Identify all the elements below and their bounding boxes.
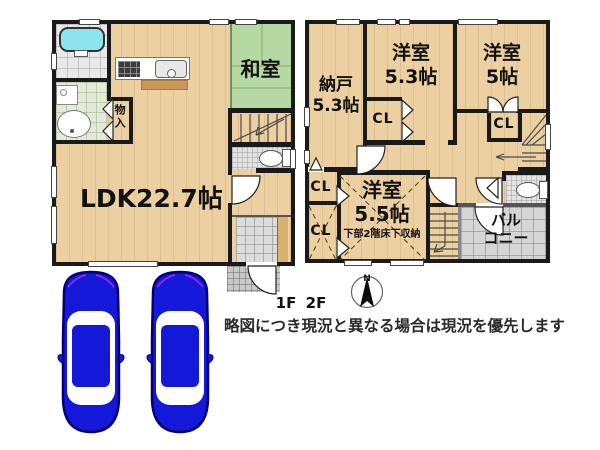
wall xyxy=(367,97,402,101)
closet-label: CL xyxy=(306,224,336,239)
toilet2-tank xyxy=(539,181,548,199)
room-label-washitsu: 和室 xyxy=(230,58,291,80)
window-mark xyxy=(458,19,498,25)
room-label-west-a-size: 5.3帖 xyxy=(372,67,450,88)
door-gap xyxy=(308,167,324,172)
bathtub xyxy=(59,27,105,52)
genkan-floor xyxy=(236,217,277,262)
wall xyxy=(129,101,133,144)
room-label-west-b-name: 洋室 xyxy=(462,43,542,64)
wall xyxy=(487,138,522,142)
window-mark xyxy=(377,19,396,25)
room-label-west-c-name: 洋室 xyxy=(344,179,420,201)
laundry-basin xyxy=(57,110,91,138)
window-mark xyxy=(304,150,310,164)
closet-label: CL xyxy=(489,117,519,132)
wall xyxy=(453,20,457,145)
entrance-door-gap xyxy=(246,262,277,268)
wall xyxy=(430,203,458,207)
bath-faucet xyxy=(74,50,88,57)
room-label-west-c-size: 5.5帖 xyxy=(344,203,420,225)
floor2-label: 2F xyxy=(302,295,330,312)
floor1-label: 1F xyxy=(272,295,300,312)
basin-drain xyxy=(70,129,74,133)
balcony-door-gap xyxy=(476,203,503,207)
balcony-edge xyxy=(458,207,461,259)
room-label-storage: 物入 xyxy=(113,104,125,130)
stove-icon xyxy=(118,61,140,77)
washstand xyxy=(56,85,78,105)
window-mark xyxy=(51,166,57,198)
genkan-step-line xyxy=(232,215,291,217)
wall xyxy=(367,140,425,145)
window-mark xyxy=(390,260,424,266)
wall xyxy=(52,78,111,82)
wall xyxy=(107,20,111,100)
wall xyxy=(502,171,550,175)
window-mark xyxy=(290,149,296,169)
car-icon xyxy=(145,269,215,435)
window-mark xyxy=(79,19,100,25)
window-mark xyxy=(51,206,57,244)
car-icon xyxy=(56,269,126,435)
washstand-bowl xyxy=(60,89,67,96)
compass-icon: N xyxy=(348,266,386,312)
wall xyxy=(228,142,291,147)
window-mark xyxy=(399,19,410,25)
balcony-label-line2: コニー xyxy=(477,230,535,247)
window-mark xyxy=(209,19,229,25)
window-mark xyxy=(51,53,57,70)
disclaimer-text: 略図につき現況と異なる場合は現況を優先します xyxy=(224,314,565,336)
kitchen-counter-table xyxy=(141,80,188,90)
wall xyxy=(337,175,341,263)
wall xyxy=(502,171,506,181)
room-label-nando-size: 5.3帖 xyxy=(308,97,364,116)
balcony-label-line1: バル xyxy=(477,212,535,229)
closet-label: CL xyxy=(368,112,398,127)
toilet2-bowl xyxy=(516,182,540,198)
wall xyxy=(337,170,430,175)
wall xyxy=(426,175,430,263)
window-mark xyxy=(336,19,360,25)
toilet1-bowl xyxy=(259,150,283,167)
underfloor-storage-note: 下部2階床下収納 xyxy=(336,229,428,240)
room-label-ldk: LDK22.7帖 xyxy=(80,185,220,213)
faucet-icon xyxy=(167,69,176,78)
floor-plan-page: LDK22.7帖 和室 物入 納戸 5.3帖 洋室 5.3帖 洋室 5帖 洋室 … xyxy=(0,0,600,450)
wall xyxy=(228,203,232,266)
wall xyxy=(228,108,295,113)
wall xyxy=(457,109,488,113)
closet-label: CL xyxy=(306,180,336,195)
room-label-west-a-name: 洋室 xyxy=(372,43,450,64)
room-label-west-b-size: 5帖 xyxy=(462,67,542,88)
wall xyxy=(305,201,337,205)
window-mark xyxy=(545,124,551,150)
genkan-step xyxy=(277,217,288,262)
entrance-porch xyxy=(227,266,280,292)
window-mark xyxy=(235,19,257,25)
room-label-nando-name: 納戸 xyxy=(308,76,364,95)
wall xyxy=(52,140,133,144)
window-mark xyxy=(88,261,158,267)
